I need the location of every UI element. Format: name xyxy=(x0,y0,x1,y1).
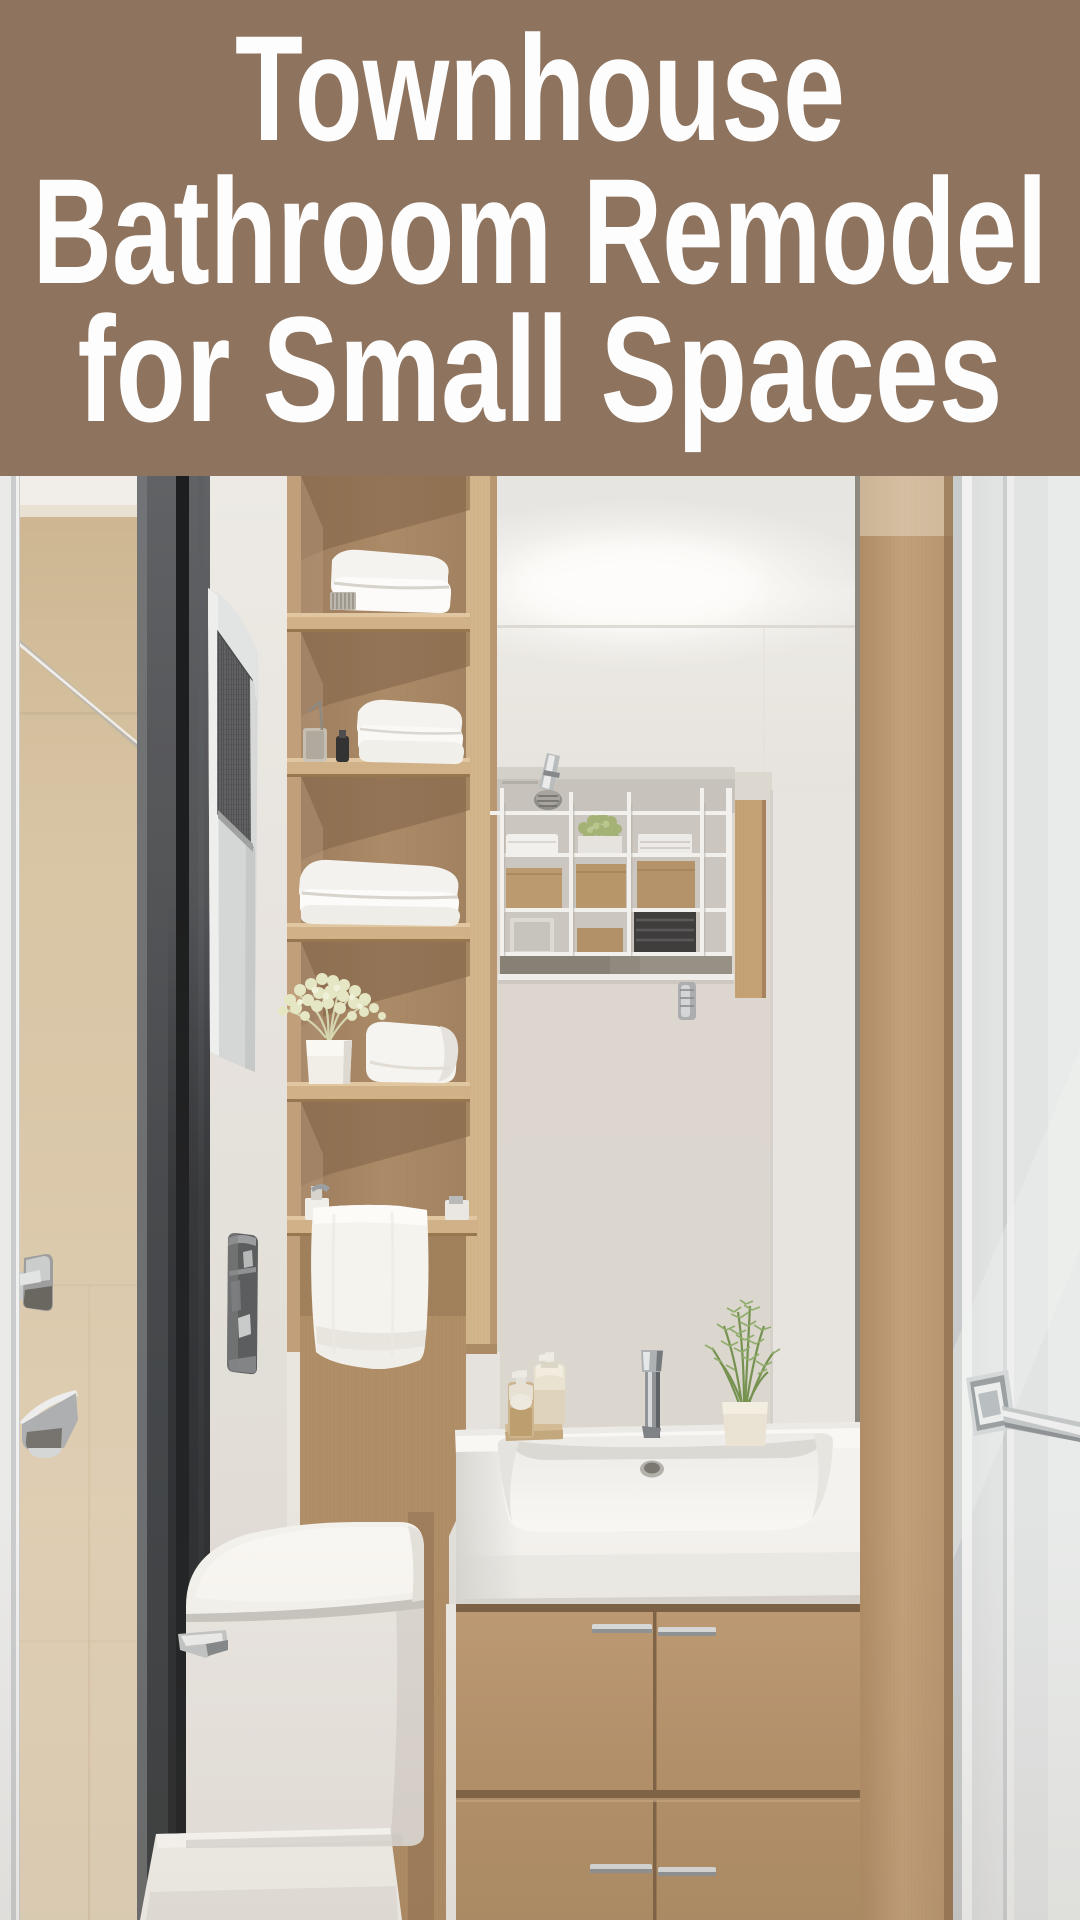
svg-text:for Small Spaces: for Small Spaces xyxy=(78,285,1003,453)
